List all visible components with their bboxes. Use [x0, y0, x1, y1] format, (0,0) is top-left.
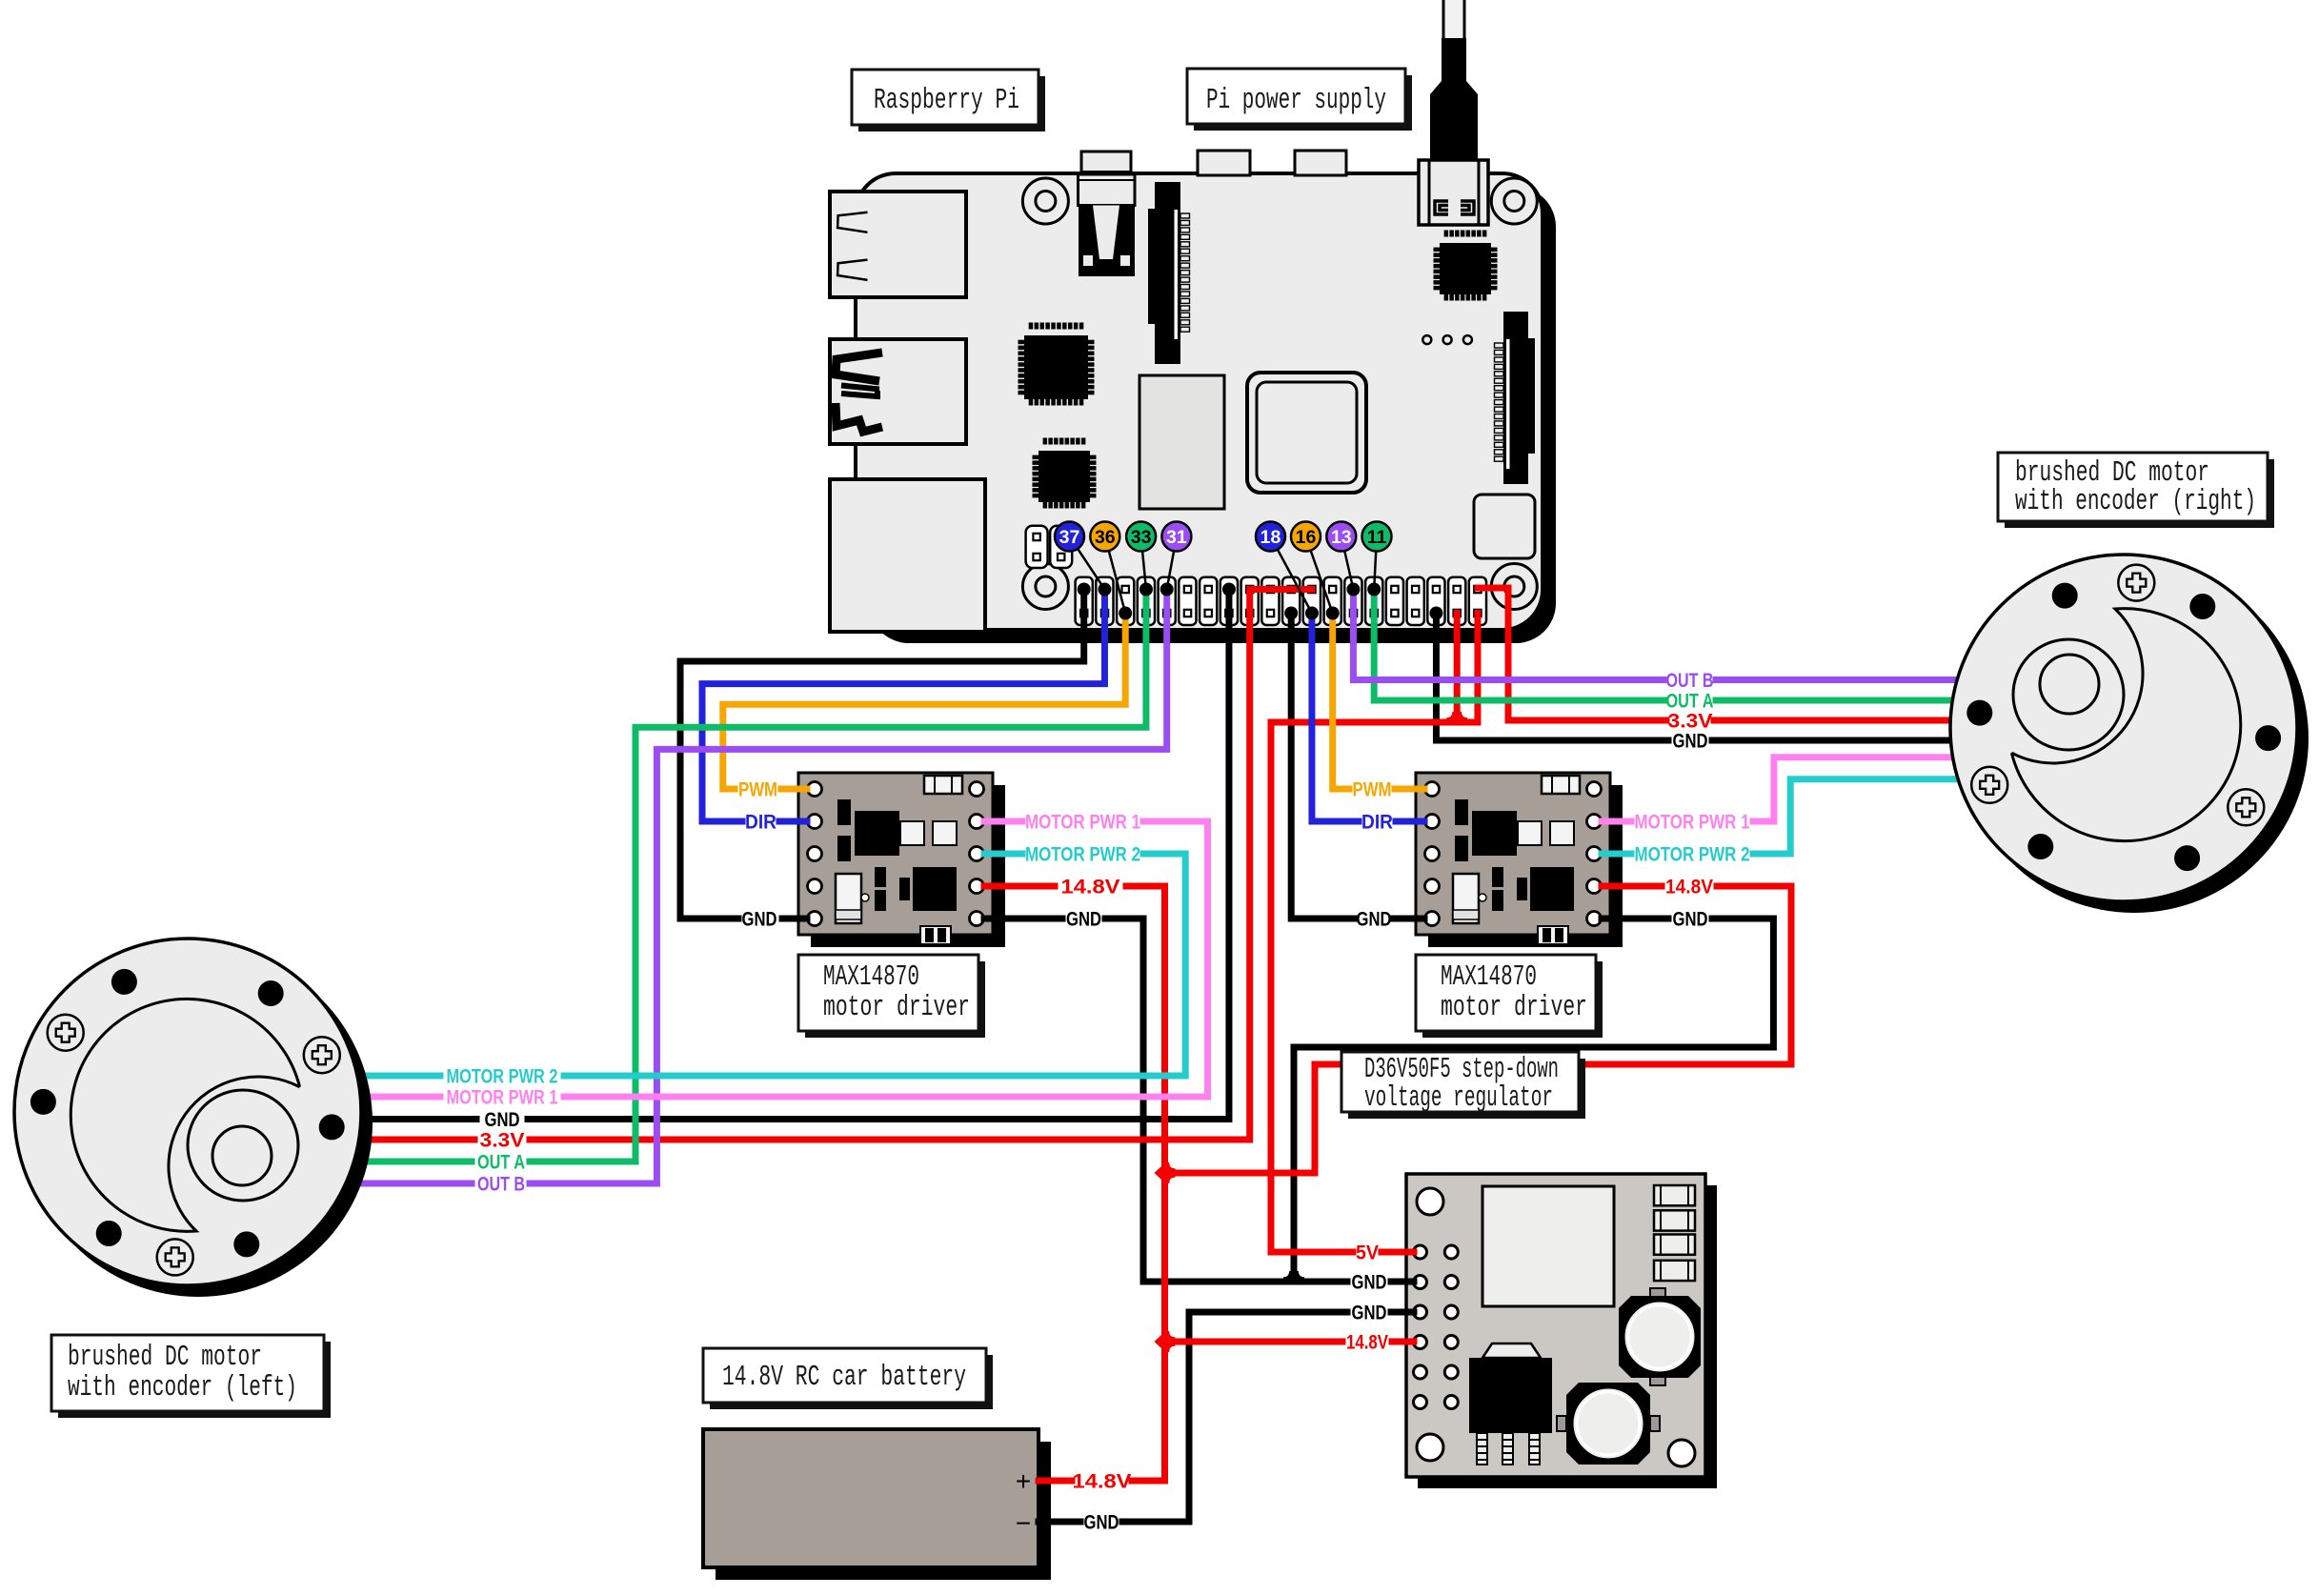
svg-text:MAX14870: MAX14870	[1441, 960, 1537, 994]
svg-text:with encoder (right): with encoder (right)	[2015, 485, 2256, 518]
svg-text:36: 36	[1095, 527, 1116, 548]
svg-text:MAX14870: MAX14870	[823, 960, 919, 994]
svg-text:OUT A: OUT A	[1666, 691, 1714, 713]
svg-text:GND: GND	[1066, 909, 1101, 931]
svg-text:GND: GND	[1084, 1512, 1119, 1534]
svg-text:−: −	[1016, 1508, 1031, 1538]
svg-text:PWM: PWM	[1353, 779, 1392, 801]
svg-text:MOTOR PWR 2: MOTOR PWR 2	[1635, 844, 1750, 866]
svg-text:14.8V: 14.8V	[1346, 1332, 1388, 1354]
svg-text:with encoder (left): with encoder (left)	[68, 1371, 297, 1404]
svg-text:14.8V RC car battery: 14.8V RC car battery	[722, 1361, 966, 1394]
svg-text:MOTOR PWR 1: MOTOR PWR 1	[447, 1087, 558, 1109]
svg-text:5V: 5V	[1356, 1242, 1379, 1264]
svg-text:31: 31	[1166, 527, 1187, 548]
svg-text:GND: GND	[1357, 909, 1392, 931]
svg-text:GND: GND	[1352, 1303, 1387, 1324]
svg-text:16: 16	[1296, 527, 1317, 548]
svg-text:OUT A: OUT A	[477, 1152, 525, 1174]
svg-text:voltage regulator: voltage regulator	[1364, 1081, 1553, 1115]
svg-text:DIR: DIR	[1361, 812, 1393, 834]
svg-text:3.3V: 3.3V	[1668, 711, 1713, 733]
svg-text:14.8V: 14.8V	[1665, 877, 1713, 899]
svg-text:Raspberry Pi: Raspberry Pi	[874, 84, 1019, 117]
svg-text:OUT B: OUT B	[1666, 670, 1714, 692]
svg-text:Pi power supply: Pi power supply	[1206, 84, 1386, 117]
svg-text:+: +	[1016, 1466, 1031, 1496]
svg-text:MOTOR PWR 1: MOTOR PWR 1	[1635, 812, 1750, 834]
svg-text:MOTOR PWR 2: MOTOR PWR 2	[447, 1066, 558, 1088]
svg-text:GND: GND	[1673, 909, 1708, 931]
svg-text:GND: GND	[1673, 731, 1708, 753]
svg-text:motor driver: motor driver	[1441, 991, 1587, 1024]
svg-text:motor driver: motor driver	[823, 991, 970, 1024]
svg-text:MOTOR PWR 1: MOTOR PWR 1	[1025, 812, 1140, 834]
svg-text:GND: GND	[742, 909, 777, 931]
svg-text:18: 18	[1260, 527, 1281, 548]
svg-text:DIR: DIR	[745, 812, 776, 834]
svg-text:3.3V: 3.3V	[480, 1130, 525, 1152]
svg-text:13: 13	[1331, 527, 1352, 548]
svg-text:GND: GND	[1352, 1272, 1387, 1294]
svg-text:11: 11	[1367, 527, 1387, 548]
svg-text:OUT B: OUT B	[477, 1174, 525, 1196]
svg-text:brushed DC motor: brushed DC motor	[68, 1341, 262, 1374]
svg-text:33: 33	[1131, 527, 1152, 548]
svg-text:14.8V: 14.8V	[1073, 1471, 1132, 1493]
svg-text:MOTOR PWR 2: MOTOR PWR 2	[1025, 844, 1140, 866]
svg-text:PWM: PWM	[738, 779, 777, 801]
svg-text:14.8V: 14.8V	[1061, 877, 1120, 899]
svg-text:GND: GND	[485, 1109, 520, 1131]
svg-text:37: 37	[1059, 527, 1080, 548]
